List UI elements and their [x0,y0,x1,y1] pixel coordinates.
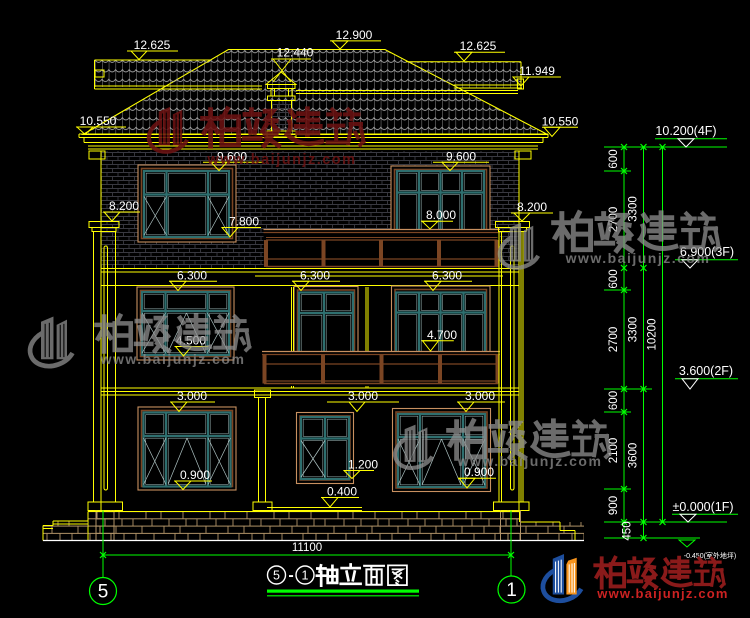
svg-text:0.900: 0.900 [180,468,210,482]
svg-text:6.300: 6.300 [432,268,462,282]
svg-text:10200: 10200 [647,319,659,351]
svg-text:11.949: 11.949 [519,64,555,78]
svg-text:7.800: 7.800 [229,215,259,229]
svg-text:5: 5 [273,569,280,583]
svg-text:1: 1 [506,580,517,601]
svg-text:1.200: 1.200 [348,458,378,472]
svg-text:www.baijunjz.com: www.baijunjz.com [206,152,356,168]
svg-text:11100: 11100 [292,542,322,554]
svg-text:3.000: 3.000 [177,389,207,403]
svg-text:12.900: 12.900 [336,28,373,42]
svg-text:3300: 3300 [628,196,640,222]
svg-text:www.baijunjz.com: www.baijunjz.com [565,250,711,266]
svg-text:3600: 3600 [628,443,640,469]
svg-text:10.200(4F): 10.200(4F) [655,124,716,138]
svg-text:±0.000(1F): ±0.000(1F) [672,500,733,514]
svg-text:6.300: 6.300 [300,268,330,282]
svg-text:1: 1 [302,569,309,583]
svg-text:450: 450 [622,521,634,540]
svg-text:4.700: 4.700 [427,328,457,342]
svg-text:600: 600 [608,391,620,410]
svg-text:8.200: 8.200 [517,200,547,214]
svg-text:9.600: 9.600 [446,149,476,163]
svg-text:3.000: 3.000 [348,389,378,403]
svg-text:3300: 3300 [628,317,640,343]
svg-text:0.400: 0.400 [327,485,357,499]
svg-text:12.440: 12.440 [277,46,314,60]
svg-text:900: 900 [608,496,620,515]
svg-text:www.baijunjz.com: www.baijunjz.com [457,453,603,469]
svg-text:6.300: 6.300 [177,268,207,282]
svg-text:600: 600 [608,149,620,168]
svg-text:www.baijunjz.com: www.baijunjz.com [100,351,246,367]
svg-text:600: 600 [608,269,620,288]
svg-text:-: - [288,567,293,584]
svg-text:3.600(2F): 3.600(2F) [679,364,733,378]
svg-text:10.550: 10.550 [80,114,117,128]
svg-text:5: 5 [98,582,109,603]
svg-text:10.550: 10.550 [542,114,579,128]
svg-text:3.000: 3.000 [465,389,495,403]
svg-text:12.625: 12.625 [134,38,171,52]
svg-text:8.000: 8.000 [426,208,456,222]
svg-text:12.625: 12.625 [460,39,497,53]
svg-text:www.baijunjz.com: www.baijunjz.com [596,586,728,601]
svg-text:8.200: 8.200 [109,199,139,213]
svg-text:2700: 2700 [608,327,620,353]
